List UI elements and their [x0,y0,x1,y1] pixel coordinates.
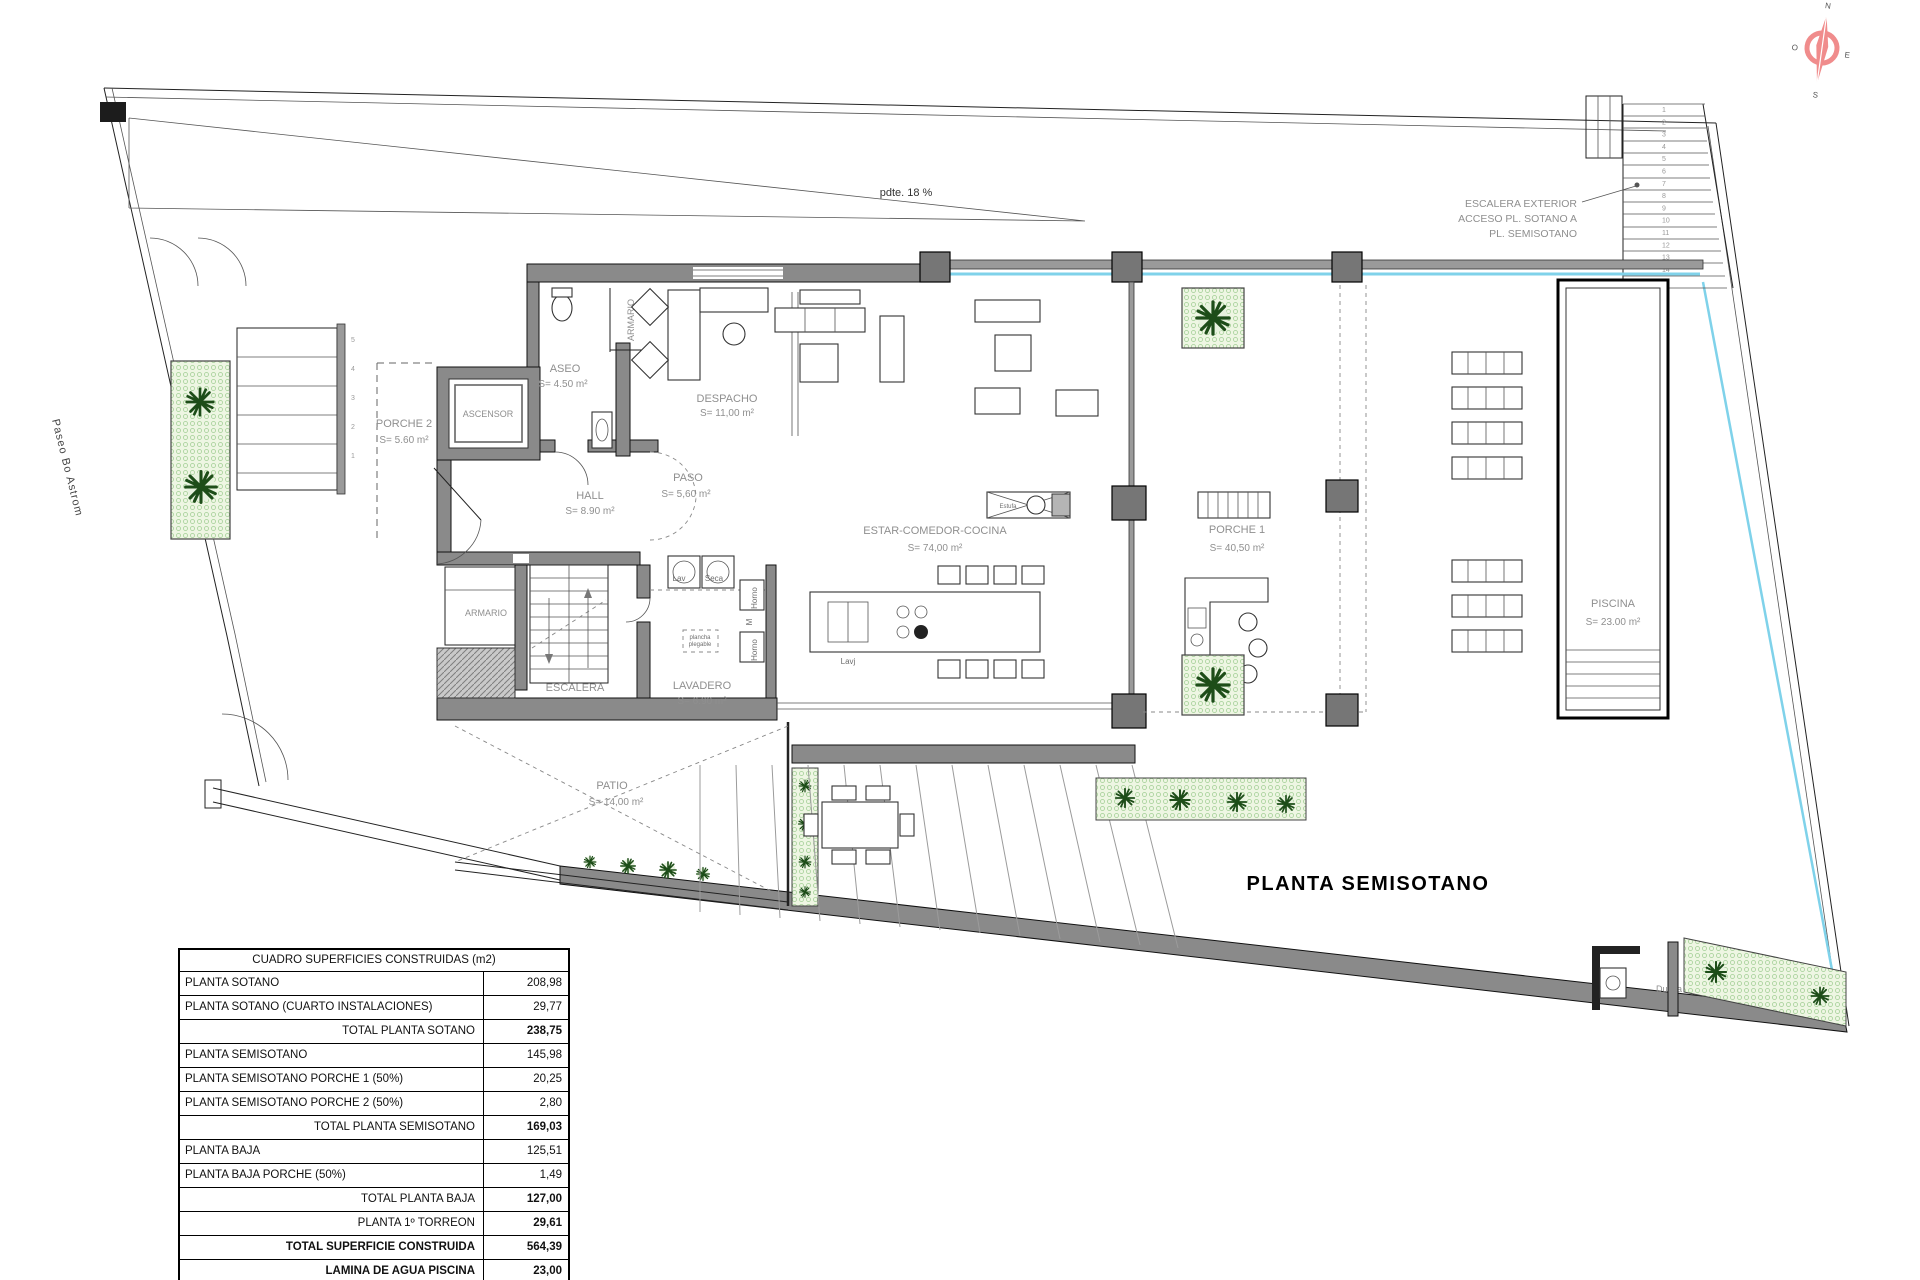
bush-icon [621,859,636,874]
stair-note-line2: ACCESO PL. SOTANO A [1458,213,1577,225]
compass-icon: N S E O [1785,0,1857,103]
room-label: LAVADERO [673,680,732,692]
chair-icon [832,850,856,864]
room-label: PATIO [596,780,628,792]
column [1112,486,1146,520]
room-label: PORCHE 2 [376,418,432,430]
column [920,252,950,282]
left-planter [171,361,230,539]
room-escalera: ESCALERA [530,565,608,694]
oven-label: Horno [750,587,759,609]
table-row: PLANTA SOTANO (CUARTO INSTALACIONES)29,7… [180,996,568,1020]
chair-icon [1022,660,1044,678]
table-row-total: TOTAL PLANTA SEMISOTANO169,03 [180,1116,568,1140]
chair-icon [804,814,818,836]
chair-icon [832,786,856,800]
room-label: ESTAR-COMEDOR-COCINA [863,525,1007,537]
room-label: ASCENSOR [463,409,514,419]
tree-icon [1228,793,1246,811]
stair-note-line3: PL. SEMISOTANO [1489,228,1577,240]
exterior-stair-number: 1 [1662,107,1666,114]
exterior-stair-number: 7 [1662,181,1666,188]
table-row-total: TOTAL PLANTA BAJA127,00 [180,1188,568,1212]
left-stair-number: 4 [351,366,355,373]
room-area: S= 11,00 m² [700,408,755,419]
room-label: DESPACHO [697,393,758,405]
table-row: PLANTA SEMISOTANO PORCHE 1 (50%)20,25 [180,1068,568,1092]
bush-icon [800,887,811,898]
room-label: HALL [576,490,604,502]
room-area: S= 23.00 m² [1586,617,1641,628]
room-estar: Estufa Lavj ESTAR-COMEDOR-COCINA S= 74,0… [775,290,1098,678]
water-edge-right [1703,282,1841,1018]
stool-icon [1249,639,1267,657]
room-label: PISCINA [1591,598,1636,610]
room-label: ASEO [550,363,581,375]
chair-icon [966,566,988,584]
column [1112,694,1146,728]
compass-south: S [1812,90,1819,100]
room-paso: PASO S= 5,60 m² [650,452,711,540]
compass-north: N [1824,1,1831,11]
chair-icon [966,660,988,678]
stair-note-line1: ESCALERA EXTERIOR [1465,198,1577,210]
left-stair-number: 3 [351,395,355,402]
desk [700,288,768,312]
bush-icon [660,862,676,878]
dryer-label: Seca [705,574,724,583]
table-row-grand-total: TOTAL SUPERFICIE CONSTRUIDA564,39 [180,1236,568,1260]
ironing-board [683,630,718,652]
microwave-label: M [745,618,754,625]
room-area: S= 6.90 m² [677,696,727,707]
shower-tray-icon [1600,968,1626,998]
bush-icon [697,868,710,881]
armchair-icon [1056,390,1098,416]
column [1112,252,1142,282]
sofa-icon [975,300,1040,322]
chair-icon [994,566,1016,584]
slope-label: pdte. 18 % [880,187,933,199]
stool-icon [1239,613,1257,631]
left-stair-number: 1 [351,453,355,460]
left-stair-number: 2 [351,424,355,431]
chair-icon [632,289,669,326]
room-area: S= 5,60 m² [661,489,711,500]
lounger-icon [1198,492,1270,518]
sofa-icon [880,316,904,382]
chair-icon [866,786,890,800]
table-row: PLANTA SOTANO208,98 [180,972,568,996]
room-area: S= 5.60 m² [379,435,429,446]
chair-icon [900,814,914,836]
lounger-icon [1452,630,1522,652]
street-label: Paseo Bo Astrom [49,418,85,518]
sink-label: Lavj [841,657,856,666]
table-row-grand-total: LAMINA DE AGUA PISCINA23,00 [180,1260,568,1280]
chair-icon [994,660,1016,678]
room-armario2: ARMARIO [445,567,515,645]
bush-icon [799,856,811,868]
tree-icon [1278,796,1295,813]
sun-loungers [1452,352,1522,652]
table-row: PLANTA SEMISOTANO145,98 [180,1044,568,1068]
ironing-label: plegable [689,642,712,648]
exterior-stair-number: 9 [1662,205,1666,212]
exterior-stair-number: 4 [1662,144,1666,151]
room-label: ESCALERA [546,682,605,694]
tree-icon [1197,669,1229,701]
column [1332,252,1362,282]
room-porche2: PORCHE 2 S= 5.60 m² [376,363,437,540]
washer-label: Lav [673,574,686,583]
chair-icon [866,850,890,864]
lounger-icon [1452,560,1522,582]
exterior-stair-number: 10 [1662,218,1670,225]
chair-icon [938,660,960,678]
swimming-pool: PISCINA S= 23.00 m² [1558,280,1668,718]
areas-table-header: CUADRO SUPERFICIES CONSTRUIDAS (m2) [180,950,568,972]
tree-icon [1116,789,1134,807]
left-stair-number: 5 [351,337,355,344]
room-lavadero: Lav Seca Horno M Horno plancha plegable … [650,556,766,707]
exterior-stair-number: 8 [1662,193,1666,200]
chair-icon [1022,566,1044,584]
room-area: S= 74,00 m² [908,543,963,554]
room-hall: HALL S= 8.90 m² [565,490,615,517]
ironing-label: plancha [689,635,711,641]
office-chair-icon [723,323,745,345]
table-row-total: TOTAL PLANTA SOTANO238,75 [180,1020,568,1044]
table-row: PLANTA BAJA125,51 [180,1140,568,1164]
lounger-icon [1452,387,1522,409]
stove-label: Estufa [999,504,1017,510]
fireplace: Estufa [987,492,1070,518]
oven-label: Horno [750,639,759,661]
utility-marker [100,102,126,122]
room-label: PASO [673,472,703,484]
lounger-icon [1452,457,1522,479]
gate-swing-arc [222,714,288,780]
chair-icon [938,566,960,584]
side-table [995,335,1031,371]
floor-plan-sheet: pdte. 18 % ESCALERA EXTERIOR ACCESO PL. … [0,0,1920,1280]
lounger-icon [1452,422,1522,444]
exterior-stair-number: 6 [1662,169,1666,176]
table-row: PLANTA SEMISOTANO PORCHE 2 (50%)2,80 [180,1092,568,1116]
exterior-stair: ESCALERA EXTERIOR ACCESO PL. SOTANO A PL… [1458,96,1733,288]
column [1326,480,1358,512]
room-despacho: DESPACHO S= 11,00 m² [632,288,768,419]
room-label: PORCHE 1 [1209,524,1265,536]
room-area: S= 40,50 m² [1210,543,1265,554]
compass-west: O [1791,43,1798,53]
kitchen-island: Lavj [810,566,1044,678]
room-area: S= 14,00 m² [589,797,644,808]
exterior-stair-number: 12 [1662,242,1670,249]
room-label: ARMARIO [465,608,507,618]
sofa-icon [775,308,865,332]
outdoor-dining [804,786,914,864]
exterior-stair-number: 11 [1662,230,1669,237]
table-row-total: PLANTA 1º TORREON29,61 [180,1212,568,1236]
lounger-icon [1452,352,1522,374]
coffee-table [800,344,838,382]
exterior-stair-number: 3 [1662,132,1666,139]
table-row: PLANTA BAJA PORCHE (50%)1,49 [180,1164,568,1188]
page-title: PLANTA SEMISOTANO [1247,873,1490,895]
sideboard [668,290,700,380]
chair-icon [632,342,669,379]
sink-icon [592,412,612,448]
compass-east: E [1844,50,1851,60]
lounger-icon [1452,595,1522,617]
tree-icon [1811,987,1828,1004]
tree-icon [187,389,214,416]
armchair-icon [975,388,1020,414]
hatched-wall [437,648,515,698]
tree-icon [1706,962,1726,982]
exterior-stair-number: 5 [1662,156,1666,163]
left-exterior-stair: 54321 [222,324,355,780]
toilet-icon [552,295,572,321]
tv-bench [800,290,860,304]
tree-icon [1170,790,1190,810]
tree-icon [1197,302,1229,334]
areas-table: CUADRO SUPERFICIES CONSTRUIDAS (m2) PLAN… [178,948,570,1280]
tree-icon [186,472,217,503]
garage-door-arcs [150,238,246,286]
column [1326,694,1358,726]
table [822,802,898,848]
bush-icon [584,856,596,868]
room-area: S= 8.90 m² [565,506,615,517]
lower-terrace: Ducha [700,765,1846,1026]
lower-retaining-wall [560,866,1847,1032]
room-area: S= 4.50 m² [538,379,588,390]
exterior-stair-number: 2 [1662,119,1666,126]
